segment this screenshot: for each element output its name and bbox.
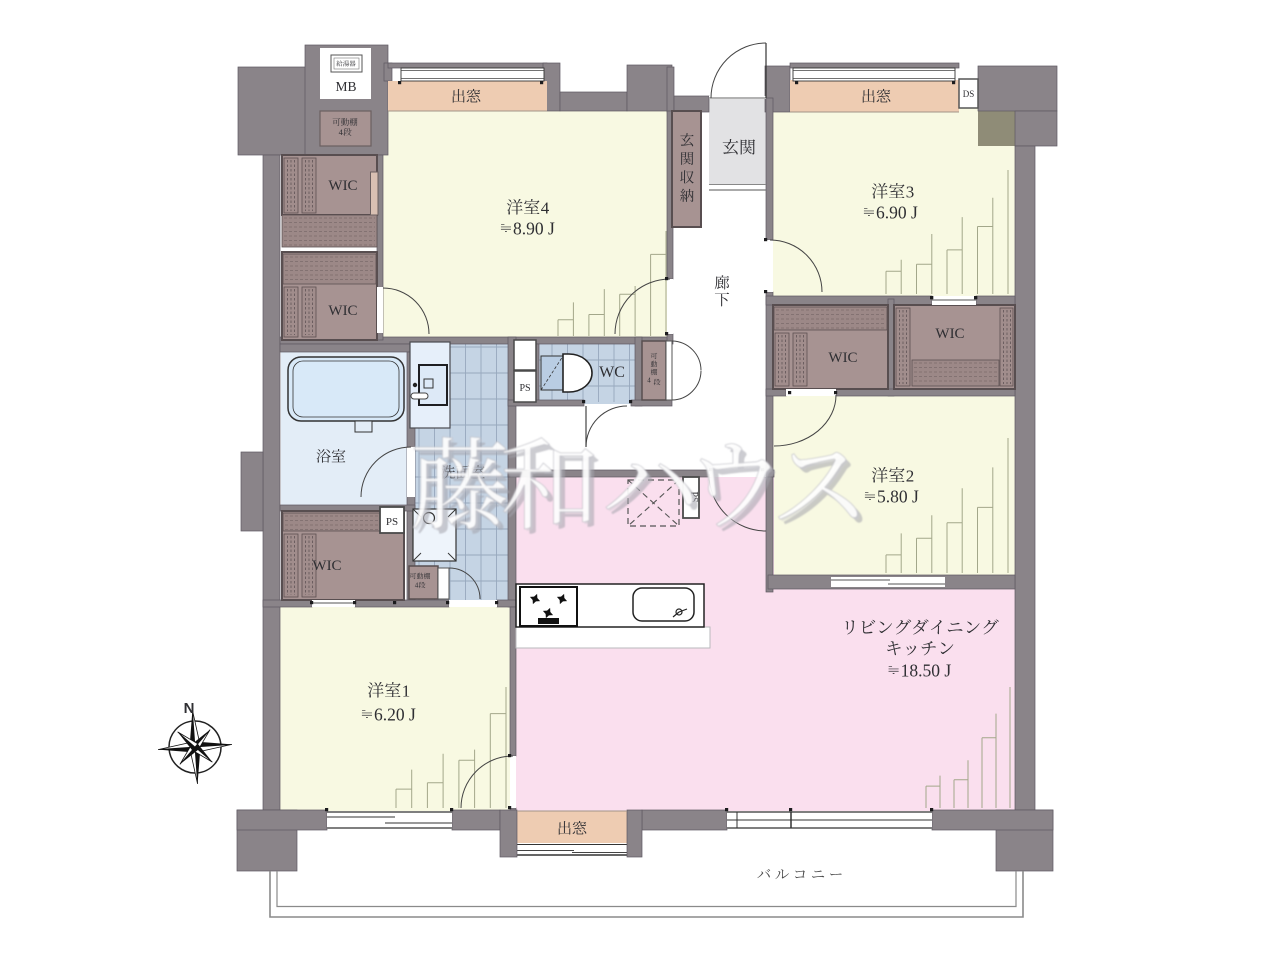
svg-text:2: 2: [906, 466, 915, 485]
svg-text:4: 4: [415, 582, 419, 590]
svg-text:MB: MB: [335, 79, 356, 94]
svg-text:WC: WC: [599, 364, 625, 381]
svg-text:4: 4: [541, 198, 550, 217]
svg-text:18.50 J: 18.50 J: [901, 660, 952, 680]
svg-text:6.90 J: 6.90 J: [876, 202, 918, 222]
svg-text:5.80 J: 5.80 J: [877, 486, 919, 506]
svg-text:PS: PS: [519, 383, 530, 394]
svg-text:N: N: [184, 700, 195, 717]
svg-text:WIC: WIC: [328, 303, 357, 319]
svg-text:WIC: WIC: [328, 178, 357, 194]
svg-text:PS: PS: [386, 516, 398, 528]
svg-text:6.20 J: 6.20 J: [374, 704, 416, 724]
svg-text:DS: DS: [963, 89, 975, 99]
svg-text:WIC: WIC: [312, 558, 341, 574]
svg-text:8.90 J: 8.90 J: [513, 218, 555, 238]
svg-text:3: 3: [906, 182, 915, 201]
svg-text:WIC: WIC: [828, 350, 857, 366]
svg-text:WIC: WIC: [935, 326, 964, 342]
svg-text:1: 1: [402, 681, 411, 700]
svg-text:4: 4: [647, 377, 651, 385]
